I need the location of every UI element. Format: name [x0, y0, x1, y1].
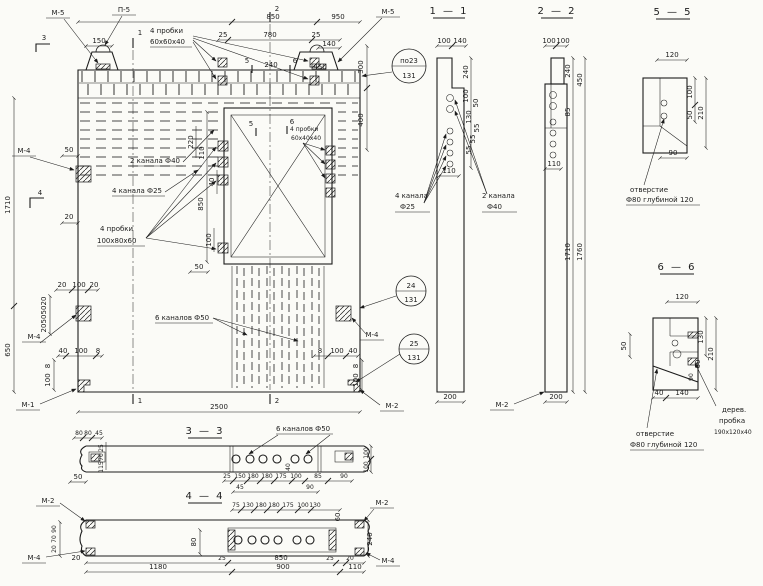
callout-m5-left: М-5 — [51, 9, 64, 17]
label-plugs60-line2: 60х60х40 — [150, 38, 185, 46]
label-plugs100-line1: 4 пробки — [100, 225, 133, 233]
s11-label-ch25-line1: 4 канала — [395, 192, 428, 200]
label-plugs40-line2: 60х40х40 — [291, 135, 321, 142]
dim-780: 780 — [263, 31, 276, 39]
s44-dim-60: 60 — [334, 513, 342, 522]
s44-dim-25b: 25 — [326, 555, 334, 562]
dim-300: 300 — [357, 60, 365, 73]
s11-dim-55a: 55 — [473, 124, 481, 133]
dim-100f: 100 — [205, 233, 213, 246]
mark-2-bottom: 2 — [275, 397, 279, 405]
s22-dim-110: 110 — [547, 160, 560, 168]
s44-callout-m2-right: М-2 — [375, 499, 388, 507]
mark-1-top: 1 — [138, 29, 142, 37]
s44-dim-75: 75 — [232, 502, 240, 509]
s44-dim-240: 240 — [366, 532, 374, 545]
callout-m4-left-top: М-4 — [17, 147, 31, 155]
s44-callout-m2-left: М-2 — [41, 497, 54, 505]
s33-dim-180a: 180 — [247, 473, 259, 480]
dim-20a: 20 — [58, 281, 67, 289]
callout-m4-right: М-4 — [365, 331, 379, 339]
s11-dim-200: 200 — [443, 393, 456, 401]
s44-callout-m4-right: М-4 — [381, 557, 395, 565]
dim-20-edge: 20 — [65, 213, 74, 221]
section-3-3-title: 3 — 3 — [185, 426, 224, 437]
callout-m4-left-bottom: М-4 — [27, 333, 41, 341]
dim-110: 110 — [198, 146, 206, 159]
s22-dim-240: 240 — [564, 64, 572, 77]
s33-dim-45b: 45 — [236, 484, 244, 491]
callout-m5-right: М-5 — [381, 8, 394, 16]
dim-650: 650 — [4, 343, 12, 356]
s55-note-line1: отверстие — [630, 186, 668, 194]
s44-dim-70: 70 — [51, 535, 58, 543]
s11-label-ch25-line2: Ф25 — [400, 203, 415, 211]
s66-dim-140: 140 — [675, 389, 688, 397]
dim-100a: 100 — [72, 281, 85, 289]
plug-40-c — [326, 174, 335, 183]
s22-callout-m2: М-2 — [495, 401, 508, 409]
dim-100b: 100 — [74, 347, 87, 355]
mark-5-inner: 5 — [249, 120, 253, 128]
plug-40-d — [326, 188, 335, 197]
s33-dim-100r2: 100 — [363, 461, 370, 473]
s33-dim-115: 115 — [98, 461, 105, 473]
callout-m2: М-2 — [385, 402, 398, 410]
s33-label-channels: 6 каналов Ф50 — [276, 425, 330, 433]
balloon-po23-bottom: 131 — [402, 72, 415, 80]
plug-100-d — [218, 243, 228, 253]
dim-100c: 100 — [44, 373, 52, 386]
mark-4: 4 — [38, 189, 43, 197]
s44-dim-900: 900 — [276, 563, 289, 571]
dim-450: 450 — [313, 63, 326, 71]
s33-dim-100r1: 100 — [363, 447, 370, 459]
plug-40-a — [326, 146, 335, 155]
plug-100-a — [218, 141, 228, 151]
mark-6-inner: 6 — [290, 118, 295, 126]
section-1-1-title: 1 — 1 — [429, 6, 468, 17]
section-6-6-title: 6 — 6 — [657, 262, 696, 273]
s33-dim-85: 85 — [314, 473, 322, 480]
dim-850: 850 — [266, 13, 279, 21]
door-opening — [222, 104, 338, 266]
dim-100d: 100 — [330, 347, 343, 355]
mark-5-top: 5 — [245, 57, 249, 65]
callout-p5: П-5 — [118, 6, 130, 14]
dim-40b: 40 — [349, 347, 358, 355]
panel-working-drawing: 850 950 25 780 25 140 150 240 450 300 40… — [0, 0, 763, 586]
dim-20c: 20 — [40, 297, 48, 306]
dim-50a: 50 — [40, 306, 48, 315]
dim-25-left: 25 — [219, 31, 228, 39]
section-4-4-title: 4 — 4 — [185, 491, 224, 502]
dim-20b: 20 — [90, 281, 99, 289]
s33-dim-45a: 45 — [95, 430, 103, 437]
s66-dim-120: 120 — [675, 293, 688, 301]
balloon-25-top: 25 — [410, 340, 419, 348]
s66-note-hole-line2: Ф80 глубиной 120 — [630, 441, 697, 449]
section-2-2-title: 2 — 2 — [537, 6, 576, 17]
s22-dim-85: 85 — [564, 108, 572, 117]
dim-40a: 40 — [59, 347, 68, 355]
s66-dim-40: 40 — [655, 389, 664, 397]
label-channels25: 4 канала Ф25 — [112, 187, 162, 195]
section-5-5-title: 5 — 5 — [653, 7, 692, 18]
plug-100-b — [218, 157, 228, 167]
s22-dim-1760: 1760 — [576, 243, 584, 261]
callout-m1: М-1 — [21, 401, 34, 409]
s33-dim-80a: 80 — [75, 430, 83, 437]
balloon-po23-top: по23 — [400, 57, 418, 65]
s22-dim-100a: 100 — [542, 37, 555, 45]
dim-20d: 20 — [40, 324, 48, 333]
label-plugs40-line1: 4 пробки — [290, 126, 318, 133]
s55-dim-90: 90 — [669, 149, 678, 157]
s55-dim-50: 50 — [686, 111, 694, 120]
dim-140: 140 — [322, 40, 335, 48]
s22-dim-450: 450 — [576, 73, 584, 86]
s11-dim-100r: 100 — [462, 89, 470, 102]
dim-50b: 50 — [40, 315, 48, 324]
s11-label-ch40-line2: Ф40 — [487, 203, 502, 211]
s44-callout-m4-left: М-4 — [27, 554, 41, 562]
mark-3: 3 — [42, 34, 46, 42]
dim-850-vertical: 850 — [197, 197, 205, 210]
s44-dim-175: 175 — [282, 502, 294, 509]
dim-50c: 50 — [195, 263, 204, 271]
s33-dim-80b: 80 — [84, 430, 92, 437]
dim-220: 220 — [187, 135, 195, 148]
s33-dim-90a: 90 — [340, 473, 348, 480]
s55-dim-210: 210 — [697, 106, 705, 119]
s11-dim-110: 110 — [442, 167, 455, 175]
s44-dim-90: 90 — [51, 525, 58, 533]
s44-dim-100: 100 — [297, 502, 309, 509]
s55-dim-100: 100 — [686, 85, 694, 98]
dim-8a: 8 — [96, 347, 100, 355]
mark-2-top: 2 — [275, 5, 279, 13]
s44-dim-20b: 20 — [72, 554, 81, 562]
dim-8b: 8 — [44, 364, 52, 368]
dim-150: 150 — [92, 37, 105, 45]
dim-25-right: 25 — [312, 31, 321, 39]
s44-dim-1180: 1180 — [149, 563, 167, 571]
s44-dim-130b: 130 — [309, 502, 321, 509]
s33-dim-25b: 25 — [223, 473, 231, 480]
balloon-24-bottom: 131 — [404, 296, 417, 304]
plug-60-b — [218, 76, 227, 85]
s11-dim-130: 130 — [465, 110, 473, 123]
s44-dim-110: 110 — [348, 563, 361, 571]
insert-m4-right — [336, 306, 351, 321]
s66-note-plug-line1: дерев. — [722, 406, 746, 414]
s66-dim-130: 130 — [697, 330, 705, 343]
s44-dim-20a: 20 — [51, 545, 58, 553]
s33-dim-100a: 100 — [290, 473, 302, 480]
label-plugs100-line2: 100х80х60 — [97, 237, 136, 245]
s44-dim-850: 850 — [274, 554, 287, 562]
s44-dim-25a: 25 — [218, 555, 226, 562]
s44-dim-130a: 130 — [242, 502, 254, 509]
dim-50-insert: 50 — [65, 146, 74, 154]
dim-950: 950 — [331, 13, 344, 21]
plug-100-c — [218, 175, 228, 185]
s66-dim-210: 210 — [707, 347, 715, 360]
s44-dim-20c: 20 — [346, 555, 354, 562]
s66-dim-50: 50 — [620, 342, 628, 351]
s11-dim-55b: 55 — [469, 135, 477, 144]
s22-dim-1710: 1710 — [564, 243, 572, 261]
s33-dim-90b: 90 — [306, 484, 314, 491]
s11-dim-50: 50 — [472, 99, 480, 108]
s55-note-line2: Ф80 глубиной 120 — [626, 196, 693, 204]
drawing-sheet: 850 950 25 780 25 140 150 240 450 300 40… — [0, 0, 763, 586]
dim-400: 400 — [357, 113, 365, 126]
dim-240: 240 — [264, 61, 277, 69]
s11-dim-100: 100 — [437, 37, 450, 45]
s66-note-plug-line3: 190х120х40 — [714, 429, 752, 436]
dim-1710: 1710 — [4, 196, 12, 214]
plug-40-b — [326, 160, 335, 169]
s44-dim-180b: 180 — [268, 502, 280, 509]
dim-2500: 2500 — [210, 403, 228, 411]
s11-dim-240: 240 — [462, 65, 470, 78]
s44-dim-80: 80 — [190, 538, 198, 547]
left-tab-plate — [96, 64, 110, 69]
label-plugs60-line1: 4 пробки — [150, 27, 183, 35]
s33-dim-150: 150 — [234, 473, 246, 480]
s11-dim-140: 140 — [453, 37, 466, 45]
plug-60-d — [310, 76, 319, 85]
balloon-24-top: 24 — [407, 282, 416, 290]
label-channels50: 6 каналов Ф50 — [155, 314, 209, 322]
s66-note-hole-line1: отверстие — [636, 430, 674, 438]
dim-8c: 8 — [318, 347, 322, 355]
insert-m4-lower-left — [76, 306, 91, 321]
mark-1-bottom: 1 — [138, 397, 142, 405]
s33-dim-180b: 180 — [261, 473, 273, 480]
plug-60-a — [218, 58, 227, 67]
s22-dim-200: 200 — [549, 393, 562, 401]
s66-note-plug-line2: пробка — [719, 417, 745, 425]
s33-dim-70: 70 — [98, 453, 105, 461]
s66-dim-90: 90 — [688, 373, 695, 381]
balloon-25-bottom: 131 — [407, 354, 420, 362]
s33-dim-50: 50 — [74, 473, 83, 481]
s33-dim-25a: 25 — [98, 444, 105, 452]
s22-dim-100b: 100 — [556, 37, 569, 45]
s33-dim-40: 40 — [285, 463, 292, 471]
s55-dim-120: 120 — [665, 51, 678, 59]
s33-dim-175: 175 — [275, 473, 287, 480]
insert-m4-upper-left — [76, 166, 91, 182]
s44-dim-180a: 180 — [255, 502, 267, 509]
label-channels40: 2 канала Ф40 — [130, 157, 180, 165]
dim-8d: 8 — [352, 364, 360, 368]
